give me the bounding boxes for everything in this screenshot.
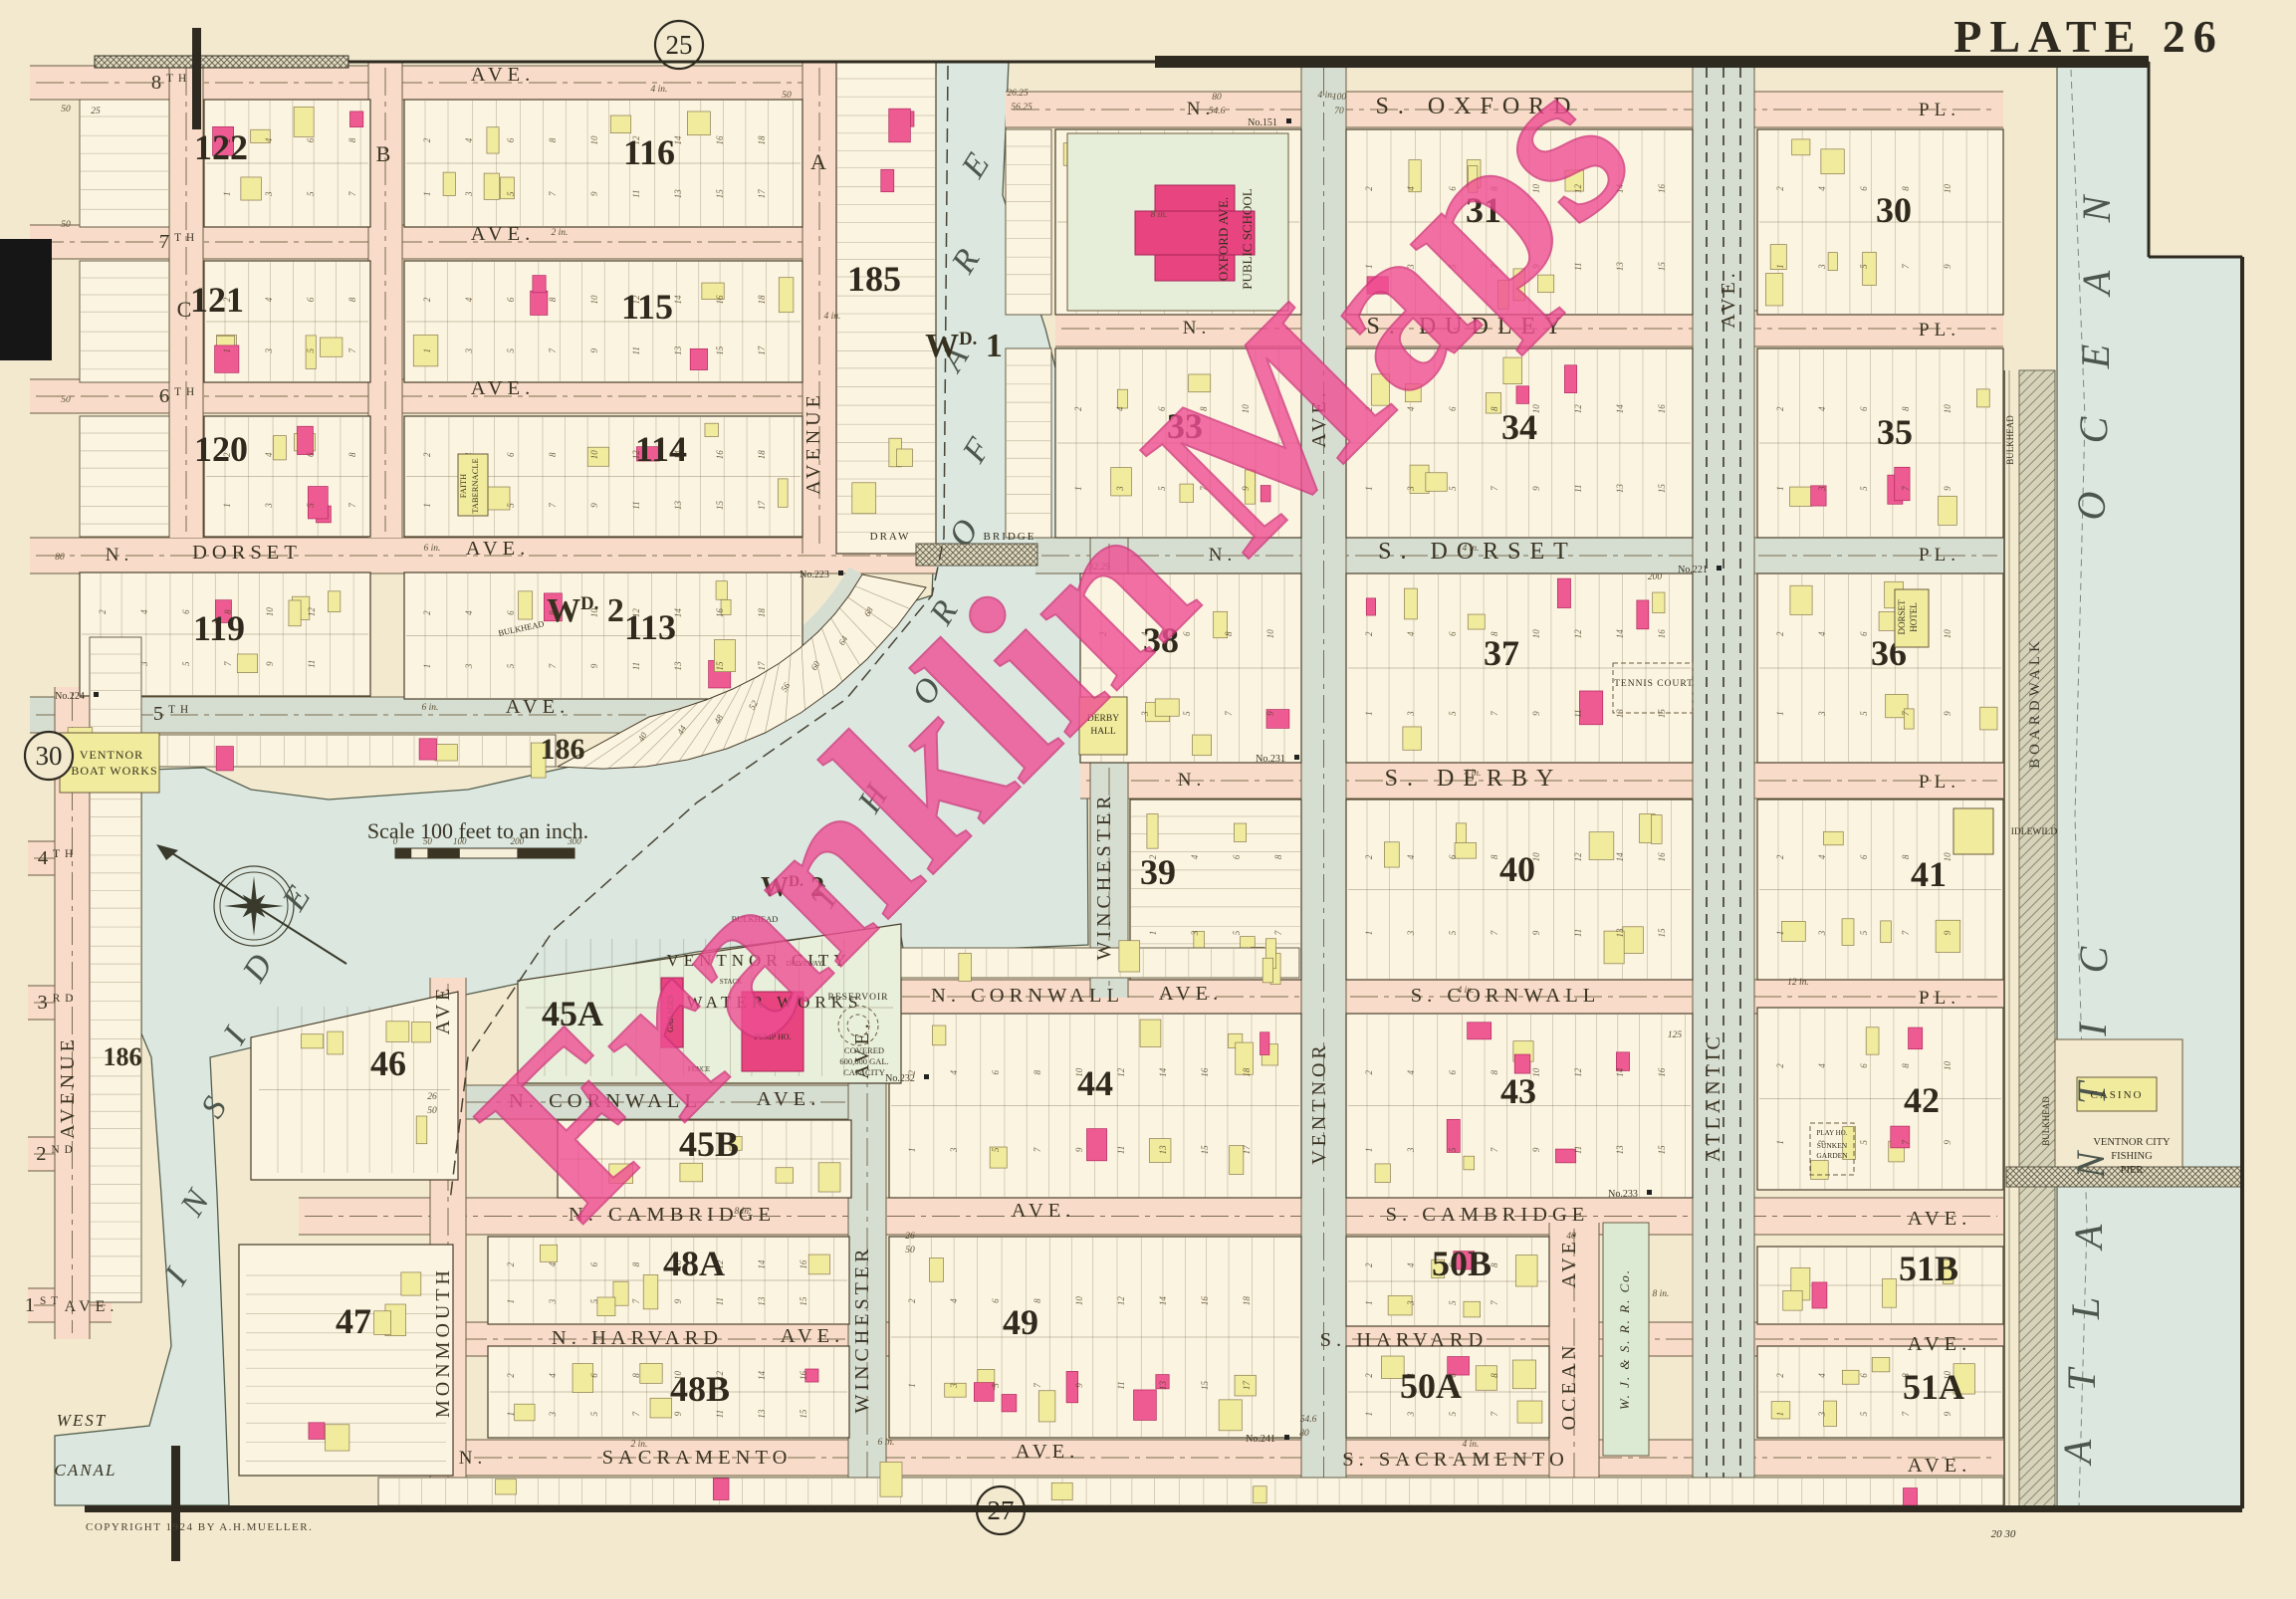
lot-number: 8 <box>548 137 558 142</box>
dimension-label: 80 <box>1299 1429 1309 1439</box>
hydrant-marker <box>1284 1435 1289 1440</box>
street-label-cambridge-ave: AVE. <box>1012 1200 1076 1222</box>
lot-number: 14 <box>757 1259 767 1269</box>
map-label: VENTNOR CITY <box>2093 1137 2171 1148</box>
map-label: DRAW <box>870 531 911 543</box>
map-label: IDLEWILD <box>2011 827 2058 837</box>
boat-works-building <box>60 733 159 793</box>
lot-number: 5 <box>1448 486 1458 491</box>
lot-number: 2 <box>422 297 432 302</box>
block-number-116: 116 <box>623 132 675 172</box>
block-49: 21436587109121114131615181749 <box>889 1237 1301 1438</box>
block-number-121: 121 <box>190 280 244 320</box>
frame-building <box>416 1116 427 1144</box>
lot-number: 6 <box>1859 1063 1869 1068</box>
frame-building <box>959 953 972 981</box>
frame-building <box>274 436 287 460</box>
map-label: PLAY HO. <box>1817 1129 1848 1137</box>
ocean-letter: O <box>2069 492 2114 521</box>
frame-building <box>1219 1400 1242 1431</box>
lot-number: 11 <box>715 1410 725 1418</box>
lot-number: 5 <box>1448 711 1458 716</box>
lot-number: 3 <box>548 1298 558 1304</box>
hydrant-marker <box>924 1074 929 1079</box>
frame-building <box>519 591 533 619</box>
lot-number: 8 <box>1490 1373 1499 1378</box>
dimension-label: 26.25 <box>1007 89 1029 99</box>
lot-number: 7 <box>1901 1140 1911 1145</box>
plate-circle-number: 30 <box>36 741 63 771</box>
block-121: 21436587121 <box>190 261 370 382</box>
lot-number: 8 <box>347 452 357 457</box>
lot-number: 5 <box>306 348 316 353</box>
lot-number: 4 <box>949 1069 959 1074</box>
dimension-label: 50 <box>61 105 71 114</box>
lot-number: 7 <box>347 348 357 353</box>
pipe-note: 4 in. <box>651 85 668 95</box>
street-label-harvard-west: N. HARVARD <box>552 1327 723 1349</box>
lot-number: 9 <box>1943 264 1952 269</box>
lot-number: 6 <box>1859 631 1869 636</box>
hydrant-marker <box>838 571 843 575</box>
street-label-cornwall-east: S. CORNWALL <box>1411 985 1601 1007</box>
pipe-note: 4 in. <box>1463 1440 1480 1450</box>
lot-number: 16 <box>715 608 725 618</box>
dimension-label: 50 <box>427 1106 437 1116</box>
lot-number: 9 <box>589 191 599 196</box>
lot-number: 3 <box>949 1147 959 1153</box>
lot-number: 16 <box>1657 1067 1667 1077</box>
brick-building <box>1447 1119 1460 1152</box>
ocean-letter: C <box>2071 415 2116 443</box>
lot-number: 7 <box>347 191 357 196</box>
lot-number: 6 <box>181 609 191 614</box>
lot-number: 5 <box>1859 711 1869 716</box>
lot-number: 11 <box>1573 929 1583 937</box>
block-47: 47 <box>239 1245 453 1476</box>
wjs-rr-label: W. J. & S. R. R. Co. <box>1617 1268 1632 1410</box>
block-number-50B: 50B <box>1432 1244 1492 1283</box>
lot-number: 2 <box>1775 1373 1785 1378</box>
lot-number: 7 <box>223 661 233 666</box>
dimension-label: 25 <box>91 107 101 116</box>
map-label: FISHING <box>2111 1151 2153 1162</box>
lot-number: 8 <box>1901 406 1911 411</box>
block-number-46: 46 <box>370 1043 406 1083</box>
lot-strip <box>80 416 169 537</box>
lot-number: 7 <box>347 503 357 508</box>
block-number-49: 49 <box>1003 1302 1038 1342</box>
dimension-label: 50 <box>782 91 792 101</box>
frame-building <box>597 1297 615 1316</box>
frame-building <box>779 278 794 313</box>
lot-number: 17 <box>757 189 767 199</box>
frame-building <box>237 654 257 673</box>
street-label-s-dorset-pl: PL. <box>1919 545 1960 566</box>
frame-building <box>1866 1028 1879 1054</box>
lot-number: 4 <box>139 609 149 614</box>
street-label-sacramento-ave: AVE. <box>1908 1455 1972 1477</box>
lot-number: 5 <box>506 348 516 353</box>
lot-number: 9 <box>1943 930 1952 935</box>
lot-number: 11 <box>631 662 641 670</box>
lot-number: 1 <box>1148 931 1158 936</box>
lot-number: 12 <box>1573 629 1583 639</box>
lot-number: 4 <box>264 297 274 302</box>
lot-strip-outline <box>80 261 169 382</box>
lot-number: 2 <box>1364 1373 1374 1378</box>
block-48B: 2143658710912111413161548B <box>488 1346 849 1438</box>
map-label: PIER <box>2121 1165 2144 1176</box>
atlantic-letter: N <box>2068 1149 2113 1179</box>
boardwalk-label: BOARDWALK <box>2027 637 2043 769</box>
lot-number: 5 <box>991 1383 1001 1388</box>
block-number-113: 113 <box>624 607 676 647</box>
lot-number: 8 <box>631 1373 641 1378</box>
block-number-30: 30 <box>1876 190 1912 230</box>
lot-number: 13 <box>673 661 683 671</box>
copyright: COPYRIGHT 1924 BY A.H.MUELLER. <box>86 1521 313 1533</box>
pipe-note: 4 in. <box>1465 769 1482 779</box>
frame-building <box>643 1274 658 1308</box>
lot-number: 1 <box>1364 1148 1374 1153</box>
dimension-label: 80 <box>1212 93 1222 103</box>
lot-number: 4 <box>264 452 274 457</box>
brick-building <box>889 109 911 142</box>
brick-building <box>1002 1394 1017 1411</box>
pipe-note: 8 in. <box>1653 1289 1670 1299</box>
atlantic-letter: C <box>2071 945 2116 973</box>
frame-building <box>1140 1020 1161 1046</box>
lot-number: 6 <box>1448 1069 1458 1074</box>
lot-number: 15 <box>1200 1380 1210 1390</box>
lot-number: 17 <box>1242 1145 1252 1155</box>
lot-number: 5 <box>1859 1411 1869 1416</box>
map-label: VENTNOR <box>80 748 143 762</box>
lot-number: 16 <box>715 295 725 305</box>
lot-number: 5 <box>1448 1411 1458 1416</box>
block-number-50A: 50A <box>1400 1366 1462 1406</box>
map-canvas: 2143658712221436587109121114131615181711… <box>0 0 2296 1599</box>
lot-number: 4 <box>1406 631 1416 636</box>
lot-strip-outline <box>378 1478 2003 1505</box>
lot-number: 15 <box>715 661 725 671</box>
lot-number: 17 <box>757 661 767 671</box>
lot-number: 11 <box>631 346 641 354</box>
block-number-120: 120 <box>194 429 248 469</box>
lot-number: 14 <box>673 295 683 305</box>
block-number-114: 114 <box>635 429 687 469</box>
lot-number: 13 <box>673 345 683 355</box>
lot-number: 9 <box>1531 930 1541 935</box>
dimension-label: 56.25 <box>1011 103 1033 113</box>
frame-building <box>1939 496 1957 525</box>
frame-building <box>1792 139 1810 155</box>
lot-number: 4 <box>1817 186 1827 191</box>
lot-number: 16 <box>1657 404 1667 414</box>
map-label: CAPACITY <box>843 1067 885 1077</box>
block-number-43: 43 <box>1500 1071 1536 1111</box>
brick-building <box>1564 365 1576 393</box>
lot-number: 7 <box>548 348 558 353</box>
frame-building <box>374 1311 391 1335</box>
frame-building <box>650 1398 672 1418</box>
brick-building <box>1903 1488 1917 1505</box>
scale-caption: Scale 100 feet to an inch. <box>367 818 588 843</box>
lot-number: 10 <box>1943 404 1952 414</box>
atlantic-letter: L <box>2063 1297 2108 1320</box>
pipe-note: 4 in. <box>1463 544 1480 554</box>
lot-number: 14 <box>1615 404 1625 414</box>
lot-number: 18 <box>1242 1296 1252 1306</box>
brick-building <box>1468 1023 1492 1039</box>
lot-number: 14 <box>1615 1067 1625 1077</box>
brick-building <box>1516 386 1529 404</box>
frame-building <box>329 591 341 612</box>
ocean-letter: E <box>2073 344 2118 369</box>
frame-building <box>443 172 455 195</box>
frame-building <box>1765 274 1782 306</box>
dimension-label: 80 <box>55 553 65 563</box>
street-label-s-derby-pl: N. <box>1178 770 1206 791</box>
lot-strip <box>80 100 169 227</box>
street-label-cornwall-east: PL. <box>1919 988 1960 1009</box>
map-label: BULKHEAD <box>2005 415 2015 465</box>
lot-number: 1 <box>1775 1412 1785 1417</box>
lot-number: 12 <box>1116 1067 1126 1077</box>
map-label: CANAL <box>55 1461 117 1480</box>
lot-number: 11 <box>715 1297 725 1305</box>
lot-number: 16 <box>1200 1296 1210 1306</box>
lot-number: 3 <box>264 191 274 197</box>
lot-strip <box>1006 129 1051 315</box>
street-label-cambridge-ave: AVE. <box>1908 1208 1972 1230</box>
lot-number: 6 <box>1859 186 1869 191</box>
street-label-7th-ave: AVE. <box>471 223 536 245</box>
brick-building <box>1086 1129 1106 1161</box>
brick-building <box>1909 1028 1923 1049</box>
hydrant-marker <box>1294 755 1299 760</box>
map-label: TENNIS COURT <box>1614 679 1694 689</box>
frame-building <box>1051 1483 1072 1499</box>
lot-number: 2 <box>506 1261 516 1266</box>
lot-number: 8 <box>1490 406 1499 411</box>
lot-number: 6 <box>506 297 516 302</box>
frame-building <box>1455 843 1476 859</box>
brick-building <box>1366 598 1375 615</box>
frame-building <box>705 423 718 436</box>
lot-number: 9 <box>1074 1147 1084 1152</box>
lot-number: 10 <box>589 135 599 145</box>
lot-number: 1 <box>222 348 232 353</box>
street-label-sacramento-ave: S. SACRAMENTO <box>1342 1449 1569 1471</box>
lot-number: 7 <box>1033 1147 1042 1152</box>
frame-building <box>1842 1370 1859 1384</box>
lot-number: 3 <box>1817 711 1827 717</box>
lot-number: 8 <box>1490 854 1499 859</box>
lot-number: 11 <box>631 190 641 198</box>
lot-number: 1 <box>1775 264 1785 269</box>
lot-number: 6 <box>589 1261 599 1266</box>
hydrant-marker-label: No.233 <box>1608 1189 1638 1200</box>
lot-number: 16 <box>715 450 725 460</box>
lot-number: 5 <box>589 1411 599 1416</box>
lot-number: 2 <box>1775 631 1785 636</box>
lot-number: 8 <box>1901 1063 1911 1068</box>
frame-building <box>1842 919 1854 946</box>
lot-number: 5 <box>1232 930 1242 935</box>
hydrant-marker-label: No.241 <box>1246 1434 1275 1445</box>
adjacent-plate-30: 30 <box>25 732 73 780</box>
lot-number: 7 <box>548 663 558 668</box>
frame-building <box>1980 707 1997 730</box>
frame-building <box>818 1163 840 1192</box>
lot-number: 7 <box>1273 930 1283 935</box>
lot-number: 4 <box>264 137 274 142</box>
lot-number: 10 <box>1943 629 1952 639</box>
lot-number: 13 <box>1615 1145 1625 1155</box>
pipe-note: 4 in. <box>824 312 841 322</box>
frame-building <box>401 1272 421 1295</box>
lot-number: 7 <box>631 1411 641 1416</box>
lot-number: 9 <box>1265 711 1275 716</box>
lot-number: 4 <box>1817 631 1827 636</box>
dimension-label: 70 <box>1334 107 1344 116</box>
frame-building <box>1193 735 1212 756</box>
lot-number: 11 <box>307 660 317 668</box>
frame-building <box>540 1245 557 1261</box>
frame-building <box>1464 1301 1481 1317</box>
brick-building <box>298 426 314 454</box>
boardwalk-strip <box>2019 370 2055 1508</box>
pipe-note: 6 in. <box>422 703 439 713</box>
lot-number: 4 <box>464 610 474 615</box>
ocean-letter: N <box>2074 193 2119 223</box>
pipe-note: 6 in. <box>878 1438 895 1448</box>
lot-number: 2 <box>1364 631 1374 636</box>
dimension-label: 50 <box>61 220 71 230</box>
frame-building <box>484 173 499 199</box>
lot-number: 15 <box>1657 484 1667 494</box>
street-label-winchester-north: WINCHESTER <box>1093 793 1115 961</box>
frame-building <box>1512 1360 1535 1389</box>
scale-bar-segment <box>395 848 411 858</box>
street-label-s-oxford-pl: PL. <box>1919 100 1960 120</box>
lot-number: 4 <box>1817 854 1827 859</box>
lot-number: 15 <box>799 1296 808 1306</box>
lot-number: 17 <box>757 345 767 355</box>
lot-number: 14 <box>1615 629 1625 639</box>
lot-number: 8 <box>548 452 558 457</box>
lot-number: 1 <box>907 1383 917 1388</box>
lot-strip-outline <box>80 416 169 537</box>
frame-building <box>610 115 630 133</box>
lot-number: 9 <box>1531 1147 1541 1152</box>
block-42: 2143658710942 <box>1757 1008 2003 1190</box>
lot-number: 1 <box>422 348 432 353</box>
block-185: 185 <box>836 62 936 554</box>
lot-number: 15 <box>715 345 725 355</box>
lot-number: 5 <box>506 663 516 668</box>
brick-building <box>690 348 707 369</box>
street-label-winchester-south: WINCHESTER <box>851 1246 873 1414</box>
block-36: 2143658710936 <box>1757 573 2003 763</box>
lot-number: 10 <box>589 295 599 305</box>
block-35: 2143658710935 <box>1757 348 2003 538</box>
idlewild-building <box>1953 808 1993 854</box>
lot-number: 9 <box>673 1411 683 1416</box>
frame-building <box>1623 927 1644 954</box>
street-label-n-dorset-ave: AVE. <box>466 538 531 560</box>
lot-strip <box>80 261 169 382</box>
lot-number: 4 <box>1190 854 1200 859</box>
block-number-122: 122 <box>194 127 248 167</box>
lot-number: 9 <box>1943 1411 1952 1416</box>
lot-number: 8 <box>1273 854 1283 859</box>
pipe-note: 6 in. <box>424 544 441 554</box>
frame-building <box>1976 389 1989 407</box>
lot-number: 9 <box>673 1298 683 1303</box>
lot-number: 15 <box>715 189 725 199</box>
street-label-n-dorset-ave: N. <box>106 545 133 566</box>
frame-building <box>1515 1256 1537 1286</box>
lot-number: 9 <box>1943 1140 1952 1145</box>
street-label-atlantic-ave: AVE. <box>1718 269 1739 329</box>
brick-building <box>1261 1032 1269 1055</box>
pipe-note: 2 in. <box>552 228 569 238</box>
street-label-avenue-c: C <box>177 297 196 322</box>
lot-number: 3 <box>1817 1411 1827 1417</box>
map-label: BOAT WORKS <box>71 764 157 778</box>
dimension-label: 200 <box>1648 572 1663 582</box>
lot-number: 8 <box>347 297 357 302</box>
map-label: 186 <box>541 733 585 766</box>
pipe-note: 8 in. <box>1151 210 1168 220</box>
lot-number: 2 <box>422 452 432 457</box>
brick-building <box>419 739 436 760</box>
frame-building <box>929 1257 943 1281</box>
frame-building <box>687 112 710 135</box>
lot-number: 4 <box>1406 1069 1416 1074</box>
street-label-harvard-east: AVE. <box>1908 1333 1972 1355</box>
lot-number: 6 <box>306 452 316 457</box>
map-label: GARDEN <box>1816 1151 1848 1160</box>
block-number-39: 39 <box>1140 852 1176 892</box>
brick-building <box>1557 578 1570 607</box>
brick-building <box>1579 691 1602 725</box>
block-number-42: 42 <box>1904 1080 1940 1120</box>
frame-building <box>301 1034 323 1048</box>
lot-number: 3 <box>464 663 474 669</box>
street-label-ventnor-ave: VENTNOR <box>1308 1041 1330 1165</box>
lot-number: 6 <box>1232 854 1242 859</box>
lot-number: 7 <box>548 191 558 196</box>
block-number-35: 35 <box>1877 412 1913 452</box>
lot-number: 4 <box>1406 854 1416 859</box>
map-label: CASINO <box>2091 1089 2144 1101</box>
lot-number: 7 <box>1490 1300 1499 1305</box>
lot-number: 15 <box>1200 1145 1210 1155</box>
street-label-monmouth-ave: AVE <box>432 985 454 1035</box>
block-30: 2143658710930 <box>1757 129 2003 315</box>
lot-number: 12 <box>1116 1296 1126 1306</box>
frame-building <box>1811 1161 1829 1180</box>
brick-building <box>1895 467 1910 500</box>
street-label-cambridge-ave: S. CAMBRIDGE <box>1386 1204 1590 1226</box>
frame-building <box>1119 941 1140 972</box>
lot-number: 11 <box>1573 1146 1583 1154</box>
lot-number: 17 <box>757 501 767 511</box>
